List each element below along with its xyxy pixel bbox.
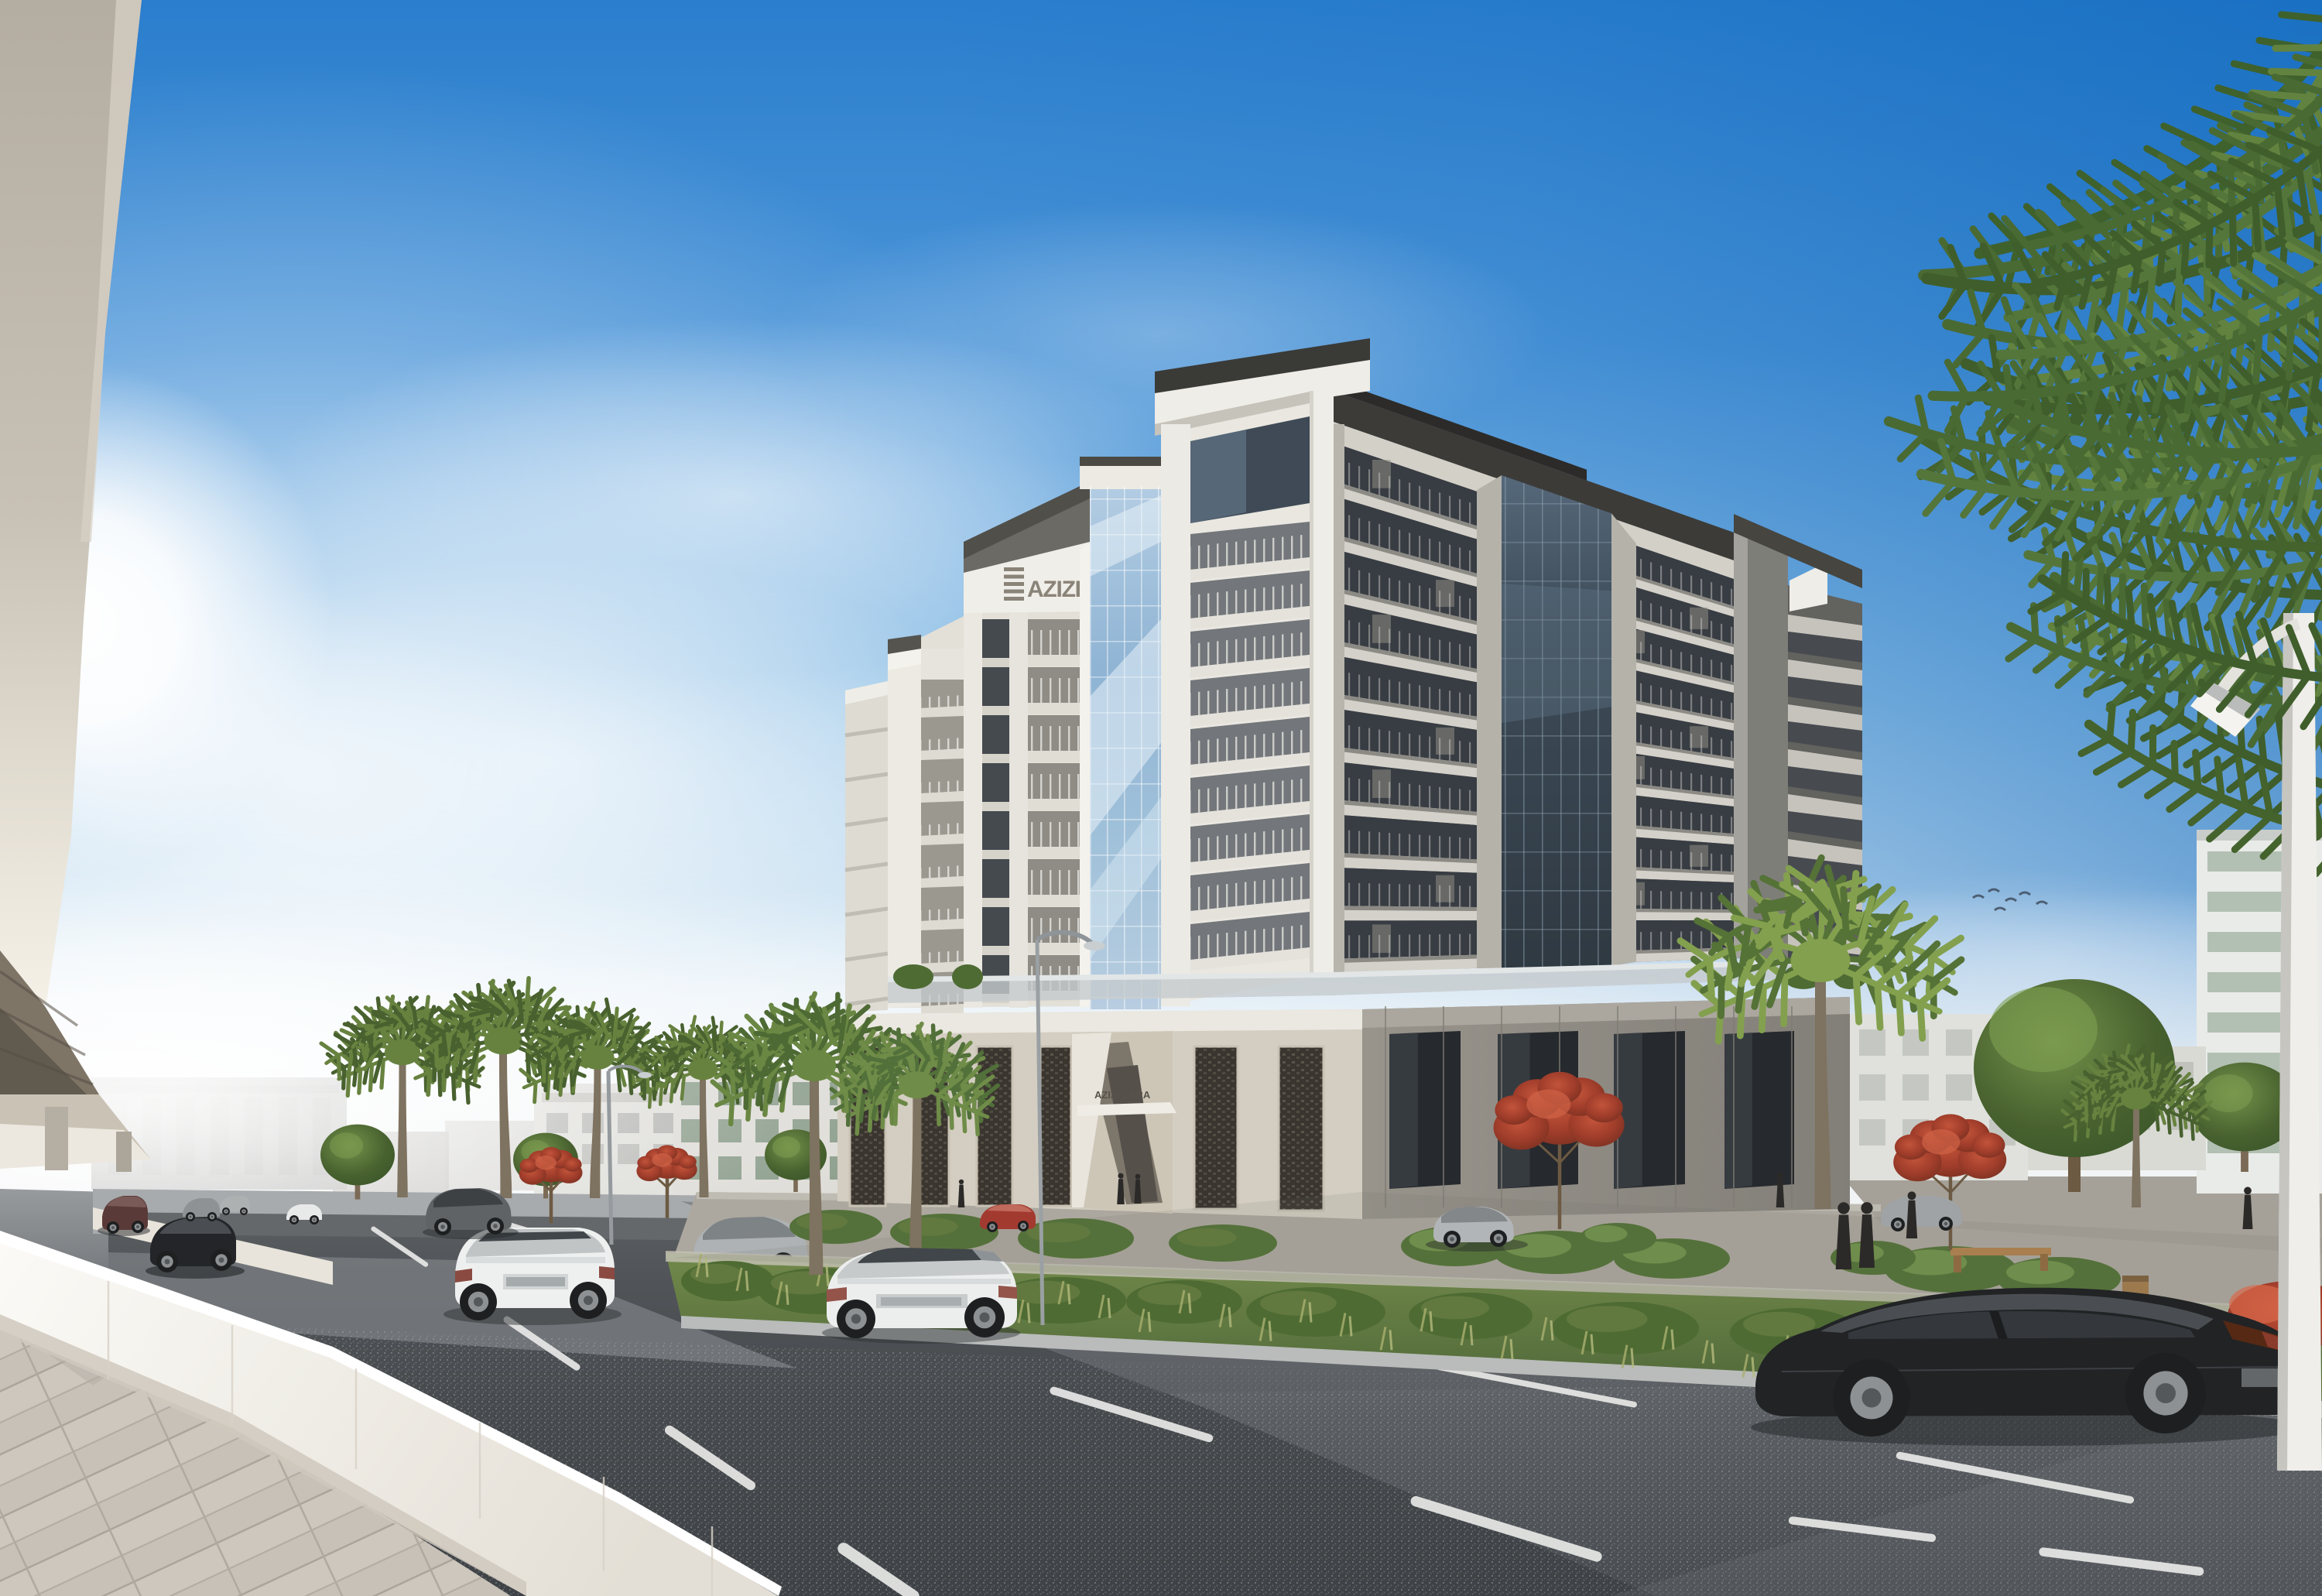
svg-text:AZIZI: AZIZI <box>1027 577 1081 602</box>
svg-text:AZIZI ZARA: AZIZI ZARA <box>1094 1089 1151 1101</box>
